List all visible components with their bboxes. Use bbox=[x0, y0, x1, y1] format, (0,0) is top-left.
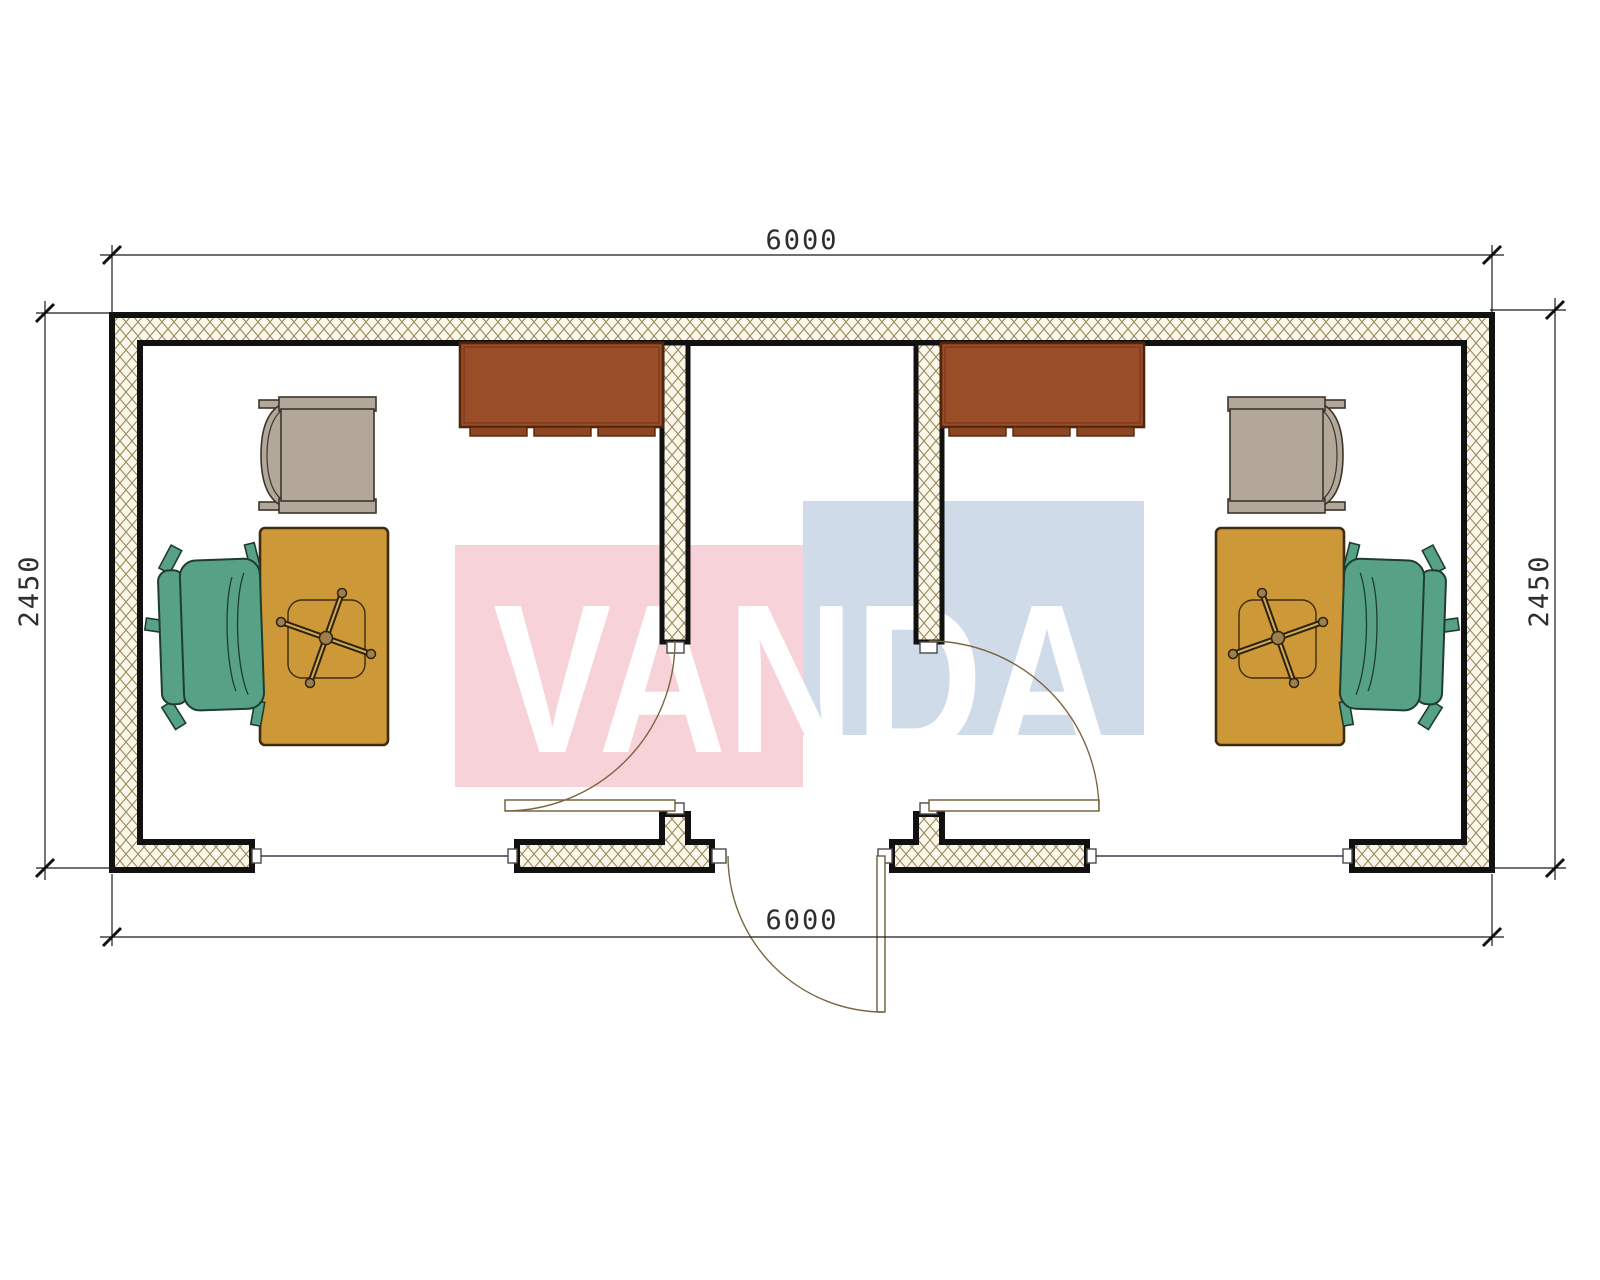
dimension-top: 6000 bbox=[100, 225, 1504, 316]
window-frame-tab bbox=[252, 849, 261, 863]
dimension-label-right: 2450 bbox=[1524, 554, 1555, 627]
armchair-left bbox=[259, 397, 376, 513]
cabinet-left bbox=[460, 343, 663, 436]
dimension-right: 2450 bbox=[1490, 298, 1566, 880]
office-chair-right bbox=[1338, 542, 1462, 730]
dimension-label-left: 2450 bbox=[14, 554, 45, 627]
dimension-left: 2450 bbox=[14, 301, 114, 880]
partition-wall-left bbox=[662, 343, 688, 642]
desk-left bbox=[260, 528, 388, 745]
watermark-text: VANDA bbox=[493, 560, 1111, 797]
window-frame-tab bbox=[1343, 849, 1352, 863]
entrance-frame-tab bbox=[712, 849, 726, 863]
dimension-label-top: 6000 bbox=[765, 225, 838, 256]
dimension-bottom: 6000 bbox=[100, 874, 1504, 946]
window-frame-tab bbox=[508, 849, 517, 863]
dimension-label-bottom: 6000 bbox=[765, 905, 838, 936]
floor-plan-canvas: VANDA 6000 bbox=[0, 0, 1600, 1280]
bottom-wall-left-segment bbox=[517, 814, 712, 870]
armchair-right bbox=[1228, 397, 1345, 513]
desk-right bbox=[1216, 528, 1344, 745]
bottom-wall-right-segment bbox=[892, 814, 1087, 870]
cabinet-right bbox=[941, 343, 1144, 436]
entrance-door-leaf bbox=[877, 856, 885, 1012]
office-door-right-leaf bbox=[929, 800, 1099, 811]
office-chair-left bbox=[142, 542, 266, 730]
door-frame-tab bbox=[920, 642, 937, 653]
partition-wall-right bbox=[916, 343, 942, 642]
window-frame-tab bbox=[1087, 849, 1096, 863]
floor-plan-page: VANDA 6000 bbox=[0, 0, 1600, 1280]
